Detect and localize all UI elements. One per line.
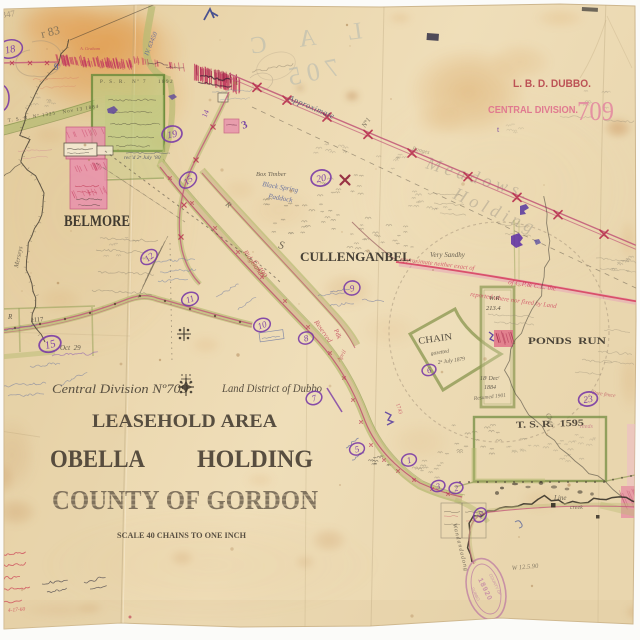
svg-text:Very Sandhy: Very Sandhy: [430, 251, 466, 259]
svg-text:23: 23: [583, 395, 594, 407]
svg-text:creek: creek: [570, 505, 583, 511]
svg-text:SCALE 40 CHAINS TO ONE INCH: SCALE 40 CHAINS TO ONE INCH: [117, 531, 247, 540]
svg-text:LEASEHOLD AREA: LEASEHOLD AREA: [92, 411, 277, 432]
svg-text:R: R: [7, 313, 13, 321]
svg-text:19: 19: [166, 129, 178, 142]
svg-text:CULLENGANBEL: CULLENGANBEL: [300, 250, 411, 264]
svg-text:P. S. R. Nº 7 1892: P. S. R. Nº 7 1892: [100, 79, 174, 85]
svg-text:L. B. D. DUBBO.: L. B. D. DUBBO.: [513, 78, 591, 90]
svg-text:709: 709: [577, 96, 614, 126]
svg-text:1884: 1884: [484, 384, 496, 391]
svg-text:9: 9: [54, 62, 59, 72]
svg-text:HOLDING: HOLDING: [197, 446, 313, 473]
svg-text:Central Division Nº709: Central Division Nº709: [52, 382, 189, 396]
svg-text:rec’d 2ⁿ​ July ’80: rec’d 2ⁿ​ July ’80: [124, 155, 161, 161]
svg-text:Land District of Dubbo: Land District of Dubbo: [221, 381, 322, 395]
svg-text:PONDS RUN: PONDS RUN: [528, 336, 607, 346]
svg-text:1117: 1117: [31, 316, 45, 324]
svg-text:Oct 29: Oct 29: [60, 344, 81, 352]
svg-text:A. Graham: A. Graham: [79, 46, 101, 51]
svg-text:Box Timber: Box Timber: [256, 171, 287, 178]
svg-text:Line: Line: [553, 494, 566, 502]
svg-text:BELMORE: BELMORE: [64, 213, 130, 230]
svg-text:reeds: reeds: [580, 424, 593, 430]
svg-text:CENTRAL DIVISION.: CENTRAL DIVISION.: [488, 104, 578, 116]
svg-text:213.4: 213.4: [486, 305, 501, 312]
svg-text:OBELLA: OBELLA: [50, 446, 145, 473]
svg-text:W.R: W.R: [489, 295, 499, 302]
svg-text:18ᵗ Decʳ: 18ᵗ Decʳ: [480, 376, 500, 382]
